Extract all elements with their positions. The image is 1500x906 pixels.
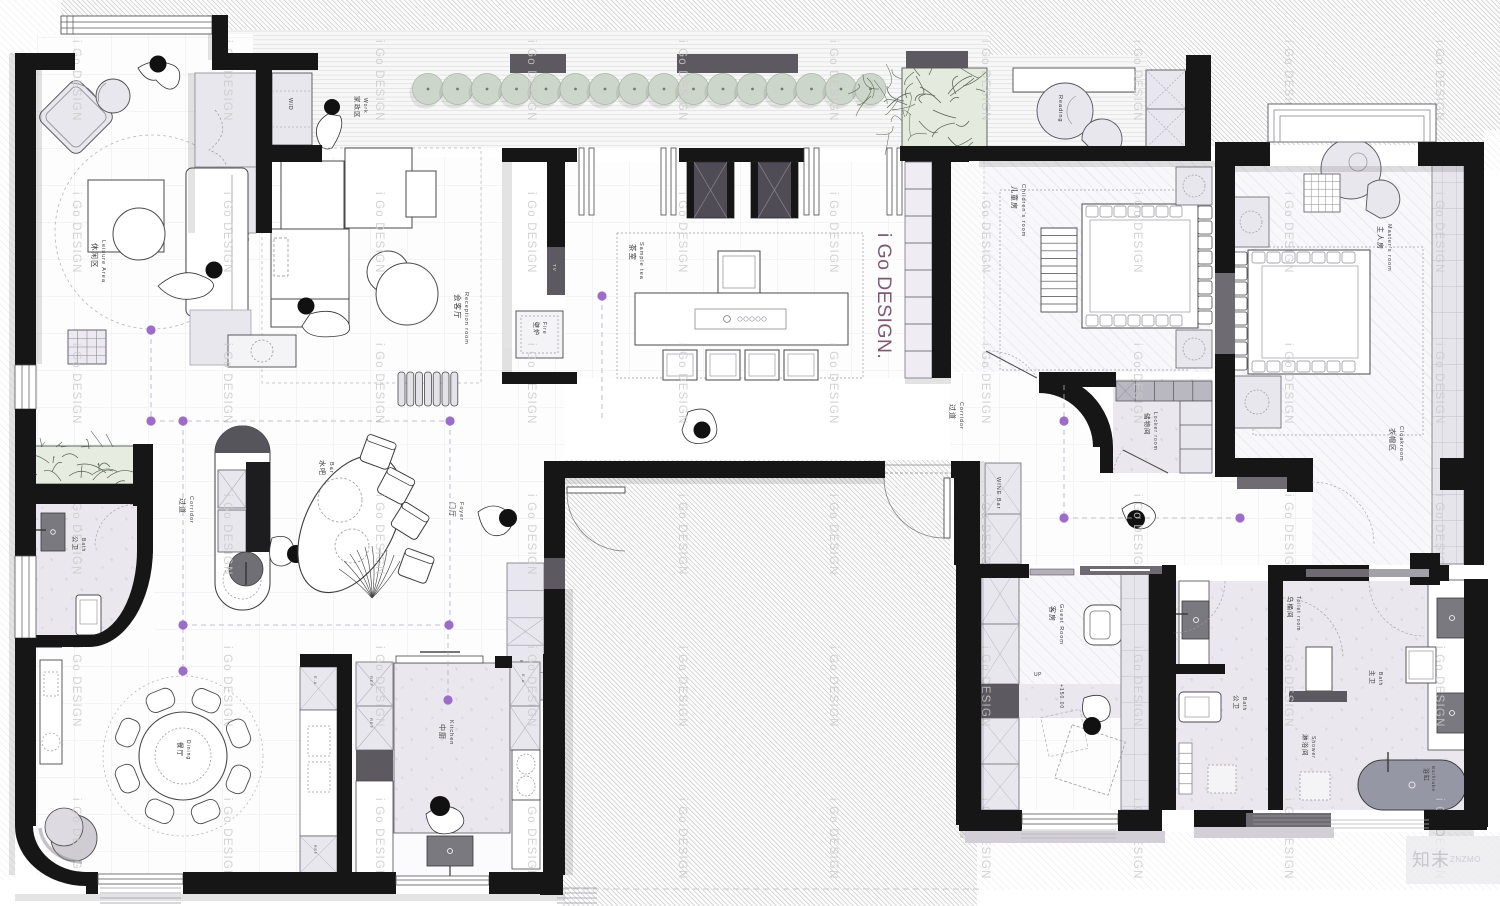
- svg-text:壁炉: 壁炉: [532, 322, 540, 336]
- svg-text:家政区: 家政区: [353, 96, 362, 119]
- svg-text:Bathtube: Bathtube: [1431, 766, 1436, 792]
- svg-text:Dining: Dining: [185, 740, 191, 760]
- svg-text:i Go DESIGN: i Go DESIGN: [373, 646, 385, 728]
- svg-text:i Go DESIGN: i Go DESIGN: [1282, 798, 1294, 880]
- svg-text:知末: 知末: [1412, 850, 1450, 870]
- svg-text:i Go DESIGN.: i Go DESIGN.: [873, 233, 895, 359]
- svg-text:i Go DESIGN: i Go DESIGN: [1282, 494, 1294, 576]
- svg-text:客房: 客房: [1048, 606, 1057, 622]
- svg-text:i Go DESIGN: i Go DESIGN: [70, 192, 82, 274]
- svg-text:Corridor: Corridor: [958, 402, 964, 430]
- svg-text:i Go DESIGN: i Go DESIGN: [676, 343, 688, 425]
- svg-text:i Go DESIGN: i Go DESIGN: [70, 494, 82, 576]
- svg-text:i Go DESIGN: i Go DESIGN: [525, 646, 537, 728]
- svg-text:浴缸: 浴缸: [1422, 768, 1430, 782]
- svg-text:+150.00: +150.00: [1058, 684, 1064, 709]
- svg-text:过道: 过道: [178, 498, 187, 514]
- svg-text:i Go DESIGN: i Go DESIGN: [525, 40, 537, 122]
- svg-text:储物间: 储物间: [1143, 413, 1152, 436]
- svg-text:Sample tea: Sample tea: [638, 242, 644, 280]
- svg-text:i Go DESIGN: i Go DESIGN: [1433, 192, 1445, 274]
- svg-text:Reception room: Reception room: [463, 292, 469, 345]
- svg-text:E.A: E.A: [313, 676, 318, 685]
- svg-text:i Go DESIGN: i Go DESIGN: [676, 494, 688, 576]
- svg-text:i Go DESIGN: i Go DESIGN: [221, 343, 233, 425]
- svg-text:i Go DESIGN: i Go DESIGN: [1131, 494, 1143, 576]
- svg-text:i Go DESIGN: i Go DESIGN: [373, 798, 385, 880]
- svg-text:主卫: 主卫: [1368, 670, 1377, 685]
- svg-text:i Go DESIGN: i Go DESIGN: [676, 40, 688, 122]
- svg-text:ZNZMO: ZNZMO: [1450, 855, 1481, 864]
- svg-text:WINE Bar: WINE Bar: [995, 477, 1001, 509]
- svg-text:i Go DESIGN: i Go DESIGN: [1282, 646, 1294, 728]
- svg-text:Foyer: Foyer: [458, 502, 464, 521]
- svg-text:衣帽区: 衣帽区: [1388, 428, 1397, 452]
- svg-text:Toilet room: Toilet room: [1295, 596, 1301, 631]
- svg-text:中厨: 中厨: [438, 724, 447, 740]
- svg-text:i Go DESIGN: i Go DESIGN: [221, 192, 233, 274]
- svg-text:Locker room: Locker room: [1152, 412, 1158, 451]
- svg-text:i Go DESIGN: i Go DESIGN: [979, 343, 991, 425]
- svg-text:Reading: Reading: [1057, 95, 1063, 123]
- svg-text:i Go DESIGN: i Go DESIGN: [221, 494, 233, 576]
- svg-text:Shower: Shower: [1310, 736, 1316, 759]
- svg-text:门厅: 门厅: [448, 502, 457, 518]
- svg-text:i Go DESIGN: i Go DESIGN: [979, 40, 991, 122]
- svg-text:i Go DESIGN: i Go DESIGN: [221, 646, 233, 728]
- svg-text:i Go DESIGN: i Go DESIGN: [70, 40, 82, 122]
- svg-text:i Go DESIGN: i Go DESIGN: [979, 192, 991, 274]
- svg-text:公卫: 公卫: [71, 536, 79, 551]
- svg-text:i Go DESIGN: i Go DESIGN: [827, 494, 839, 576]
- svg-text:i Go DESIGN: i Go DESIGN: [1282, 192, 1294, 274]
- svg-text:i Go DESIGN: i Go DESIGN: [525, 192, 537, 274]
- svg-text:休闲区: 休闲区: [90, 243, 100, 269]
- svg-text:过道: 过道: [948, 404, 957, 420]
- svg-text:Fire: Fire: [541, 322, 547, 335]
- svg-text:Guest Room: Guest Room: [1058, 604, 1064, 645]
- svg-text:淋浴间: 淋浴间: [1301, 734, 1310, 757]
- svg-text:i Go DESIGN: i Go DESIGN: [676, 192, 688, 274]
- svg-text:i Go DESIGN: i Go DESIGN: [827, 40, 839, 122]
- svg-text:Kitchen: Kitchen: [448, 720, 454, 745]
- svg-text:i Go DESIGN: i Go DESIGN: [827, 192, 839, 274]
- svg-text:i Go DESIGN: i Go DESIGN: [70, 798, 82, 880]
- svg-text:i Go DESIGN: i Go DESIGN: [70, 646, 82, 728]
- svg-text:i Go DESIGN: i Go DESIGN: [1131, 40, 1143, 122]
- svg-text:i Go DESIGN: i Go DESIGN: [373, 40, 385, 122]
- svg-text:Work: Work: [362, 98, 368, 114]
- svg-text:Cloakroom: Cloakroom: [1398, 426, 1404, 462]
- svg-text:i Go DESIGN: i Go DESIGN: [827, 646, 839, 728]
- svg-text:i Go DESIGN: i Go DESIGN: [525, 798, 537, 880]
- svg-text:i Go DESIGN: i Go DESIGN: [1131, 343, 1143, 425]
- svg-text:会客厅: 会客厅: [453, 294, 463, 320]
- svg-text:TV: TV: [552, 264, 557, 272]
- svg-text:马桶间: 马桶间: [1286, 596, 1295, 619]
- svg-text:Bath: Bath: [1241, 697, 1247, 711]
- svg-text:主人房: 主人房: [1376, 226, 1385, 250]
- svg-text:Children's room: Children's room: [1020, 184, 1026, 237]
- svg-text:水吧: 水吧: [318, 460, 327, 476]
- svg-text:Leisure Area: Leisure Area: [100, 240, 106, 283]
- svg-text:Bath: Bath: [80, 538, 86, 552]
- svg-text:i Go DESIGN: i Go DESIGN: [373, 343, 385, 425]
- svg-text:Corridor: Corridor: [188, 496, 194, 524]
- svg-text:Bar: Bar: [328, 462, 334, 474]
- svg-text:i Go DESIGN: i Go DESIGN: [373, 192, 385, 274]
- svg-text:i Go DESIGN: i Go DESIGN: [827, 798, 839, 880]
- svg-text:W/D: W/D: [287, 98, 293, 110]
- svg-text:儿童房: 儿童房: [1010, 186, 1019, 210]
- svg-text:i Go DESIGN: i Go DESIGN: [373, 494, 385, 576]
- svg-text:i Go DESIGN: i Go DESIGN: [1433, 646, 1445, 728]
- svg-text:i Go DESIGN: i Go DESIGN: [1131, 646, 1143, 728]
- svg-text:Master's room: Master's room: [1386, 224, 1392, 272]
- svg-text:i Go DESIGN: i Go DESIGN: [676, 798, 688, 880]
- svg-text:i Go DESIGN: i Go DESIGN: [1131, 192, 1143, 274]
- svg-text:公卫: 公卫: [1232, 695, 1240, 710]
- svg-text:餐厅: 餐厅: [176, 742, 185, 757]
- svg-text:i Go DESIGN: i Go DESIGN: [1433, 343, 1445, 425]
- svg-text:REF: REF: [313, 845, 317, 855]
- svg-text:UP: UP: [1034, 672, 1042, 678]
- svg-text:茶室: 茶室: [628, 244, 638, 261]
- svg-text:i Go DESIGN: i Go DESIGN: [525, 494, 537, 576]
- svg-text:i Go DESIGN: i Go DESIGN: [221, 798, 233, 880]
- svg-text:Bath: Bath: [1377, 672, 1383, 686]
- svg-text:i Go DESIGN: i Go DESIGN: [1282, 343, 1294, 425]
- svg-text:i Go DESIGN: i Go DESIGN: [70, 343, 82, 425]
- svg-text:i Go DESIGN: i Go DESIGN: [827, 343, 839, 425]
- svg-text:i Go DESIGN: i Go DESIGN: [676, 646, 688, 728]
